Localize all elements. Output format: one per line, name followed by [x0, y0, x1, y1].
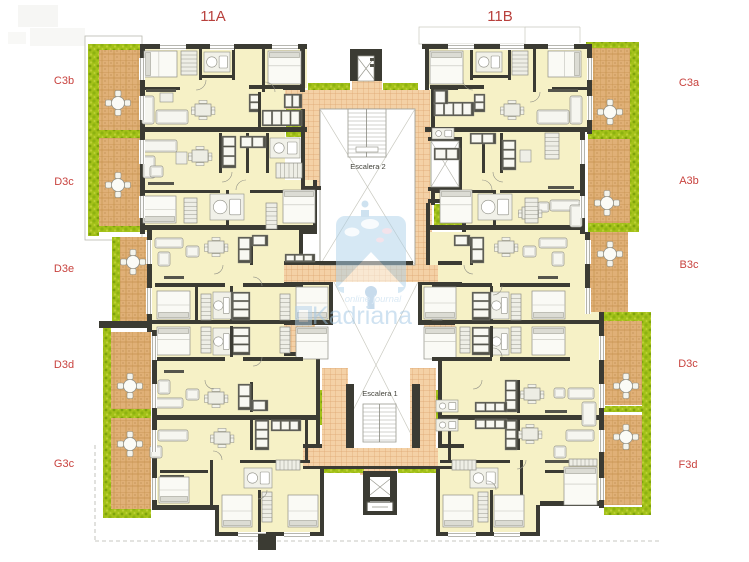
svg-text:11A: 11A	[200, 8, 226, 25]
svg-text:D3e: D3e	[54, 263, 74, 275]
svg-text:D3c: D3c	[678, 358, 698, 370]
svg-text:G3c: G3c	[54, 458, 75, 470]
svg-text:D3d: D3d	[54, 359, 74, 371]
svg-text:C3b: C3b	[54, 75, 74, 87]
svg-text:D3c: D3c	[54, 176, 74, 188]
svg-text:A3b: A3b	[679, 175, 699, 187]
svg-text:C3a: C3a	[679, 77, 700, 89]
svg-text:F3d: F3d	[679, 459, 698, 471]
svg-text:Escalera 2: Escalera 2	[350, 162, 385, 171]
svg-text:11B: 11B	[487, 8, 513, 25]
svg-text:B3c: B3c	[680, 259, 699, 271]
svg-text:Escalera 1: Escalera 1	[362, 389, 397, 398]
svg-text:Kadriana: Kadriana	[312, 302, 412, 330]
